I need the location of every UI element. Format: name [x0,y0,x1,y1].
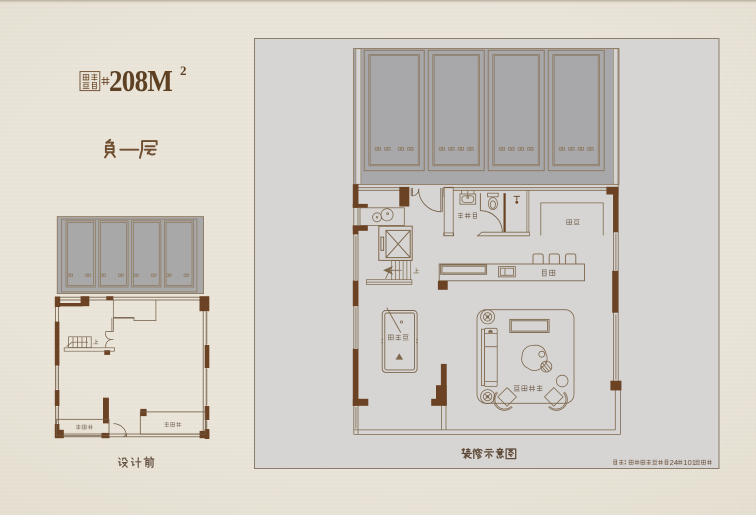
svg-text:101: 101 [683,458,696,467]
svg-text:24: 24 [670,458,678,467]
